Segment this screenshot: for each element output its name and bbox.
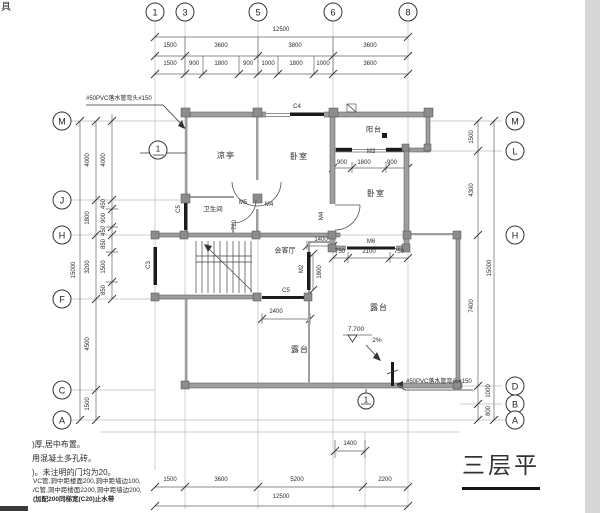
room-label-terrace-right: 露台: [370, 304, 388, 312]
dim-right-total: 15000: [487, 260, 493, 277]
room-label-pavilion: 凉亭: [217, 152, 235, 160]
dim-top-row2-1: 1500: [163, 43, 176, 49]
door-label-m6: M6: [367, 239, 375, 245]
dim-left-col1-1: 4000: [85, 153, 91, 166]
room-label-bedroom-top: 卧室: [290, 153, 308, 161]
dim-left-col1-5: 1500: [85, 397, 91, 410]
dim-left-col2-5: 850: [101, 239, 107, 249]
dim-top-row3-6: 1800: [289, 61, 302, 67]
dim-m3-2: 1800: [357, 160, 370, 166]
door-label-m2: M2: [299, 265, 305, 273]
scan-edge-band: [585, 0, 600, 513]
axis-bubble-right-h: H: [506, 226, 525, 245]
dim-top-row3-4: 900: [243, 61, 253, 67]
dim-bottom-total: 12500: [273, 494, 290, 500]
pvc-pipe-note-bottom: #50PVC落水管弯头#150: [406, 379, 472, 386]
axis-bubble-left-m: M: [53, 112, 72, 131]
axis-bubble-left-c: C: [53, 381, 72, 400]
room-label-terrace-bottom: 露台: [291, 346, 309, 354]
axis-bubble-top-5: 5: [249, 3, 268, 22]
dim-left-col2-6: 1500: [101, 260, 107, 273]
axis-bubble-left-j: J: [53, 191, 72, 210]
door-label-m4-b: M4: [319, 212, 325, 220]
axis-bubble-left-h: H: [53, 226, 72, 245]
dim-2400: 2400: [269, 309, 282, 315]
cropped-corner-glyph: 具: [1, 2, 11, 14]
dim-top-row2-3: 3800: [288, 43, 301, 49]
dim-bottom-row-3: 5200: [290, 477, 303, 483]
note-line-1: )厚,居中布置。: [32, 440, 85, 450]
dim-m6-2: 2100: [362, 249, 375, 255]
room-label-bathroom: 卫生间: [203, 207, 223, 214]
note-line-6: (加配200同梯宽(C20)止水带: [33, 496, 114, 504]
dim-right-3: 7400: [469, 299, 475, 312]
window-label-c5-mid: C5: [282, 288, 290, 294]
dim-left-col2-4: 450: [101, 226, 107, 236]
dim-right-2: 4300: [469, 183, 475, 196]
section-marker-bottom: 1: [364, 396, 368, 405]
axis-bubble-top-6: 6: [324, 3, 343, 22]
drawing-title: 三层平: [462, 452, 540, 480]
axis-bubble-right-a: A: [506, 411, 525, 430]
door-label-m5: M5: [239, 200, 247, 206]
dim-right-1: 1500: [469, 130, 475, 143]
dim-right-4: 1000: [486, 384, 492, 397]
note-line-2: 用混凝土多孔砖。: [32, 454, 96, 464]
dim-top-row3-7: 1000: [316, 61, 329, 67]
dim-top-row3-2: 900: [189, 61, 199, 67]
dim-m6-1: 750: [335, 249, 345, 255]
dim-top-row3-8: 3600: [363, 61, 376, 67]
room-label-bedroom-right: 卧室: [367, 190, 385, 198]
dim-mid-1400: 1400: [314, 237, 327, 243]
window-label-c5-left: C5: [176, 205, 182, 213]
elevation-value: 7.700: [348, 327, 364, 334]
axis-bubble-left-a: A: [53, 411, 72, 430]
dim-left-col2-7: 850: [101, 285, 107, 295]
axis-bubble-right-l: L: [506, 142, 525, 161]
floor-plan-sheet: 1 3 5 6 8 M J H F C A M L H D B A 12500 …: [0, 0, 600, 513]
door-label-m4-a: M4: [265, 202, 273, 208]
dim-720: 720: [232, 220, 238, 230]
room-label-living: 会客厅: [275, 248, 296, 255]
axis-bubble-left-f: F: [53, 290, 72, 309]
note-line-4: VC管,洞中距楼面200,洞中距墙边100,: [33, 478, 141, 486]
dim-top-row3-1: 1500: [163, 61, 176, 67]
dim-vert-1800: 1800: [317, 265, 323, 278]
section-marker-left: 1: [156, 145, 160, 154]
room-label-balcony: 阳台: [366, 127, 382, 134]
dim-bottom-row-4: 2200: [378, 477, 391, 483]
dim-top-row3-5: 1000: [261, 61, 274, 67]
axis-bubble-top-1: 1: [146, 3, 165, 22]
note-line-3: )。未注明的门均为20。: [32, 468, 116, 478]
dim-top-row2-2: 3600: [214, 43, 227, 49]
dim-right-5: 800: [486, 406, 492, 416]
dim-left-col2-1: 4000: [101, 153, 107, 166]
axis-bubble-right-m: M: [506, 112, 525, 131]
dim-bottom-row-2: 3600: [214, 477, 227, 483]
slope-label: 2%: [372, 338, 381, 345]
dim-top-row2-4: 3600: [363, 43, 376, 49]
door-label-m3: M3: [367, 149, 375, 155]
dim-left-col2-3: 900: [101, 213, 107, 223]
cropped-bottom-fragment: [0, 506, 28, 511]
dim-m3-3: 900: [387, 160, 397, 166]
axis-bubble-top-8: 8: [399, 3, 418, 22]
dim-m3-1: 900: [337, 160, 347, 166]
dim-left-total: 15000: [71, 262, 77, 279]
dim-bottom-1400: 1400: [343, 441, 356, 447]
dim-left-col1-4: 4500: [85, 337, 91, 350]
dim-left-col2-2: 450: [101, 199, 107, 209]
dim-top-row3-3: 1800: [214, 61, 227, 67]
dim-bottom-row-1: 1500: [163, 477, 176, 483]
dim-m6-3: 750: [394, 249, 404, 255]
pvc-pipe-note-top: #50PVC落水管弯头#150: [86, 96, 152, 103]
window-label-c3: C3: [146, 261, 152, 269]
dim-left-col1-2: 1800: [85, 211, 91, 224]
floorplan-linework: [0, 0, 600, 513]
axis-bubble-top-3: 3: [176, 3, 195, 22]
dim-top-total: 12500: [273, 27, 290, 33]
dim-left-col1-3: 3200: [85, 260, 91, 273]
axis-bubble-right-d: D: [506, 377, 525, 396]
title-underline: [462, 487, 540, 490]
note-line-5: /C管,洞中距楼面2200,洞中距墙边200,: [33, 487, 142, 495]
window-label-c4: C4: [293, 104, 301, 110]
